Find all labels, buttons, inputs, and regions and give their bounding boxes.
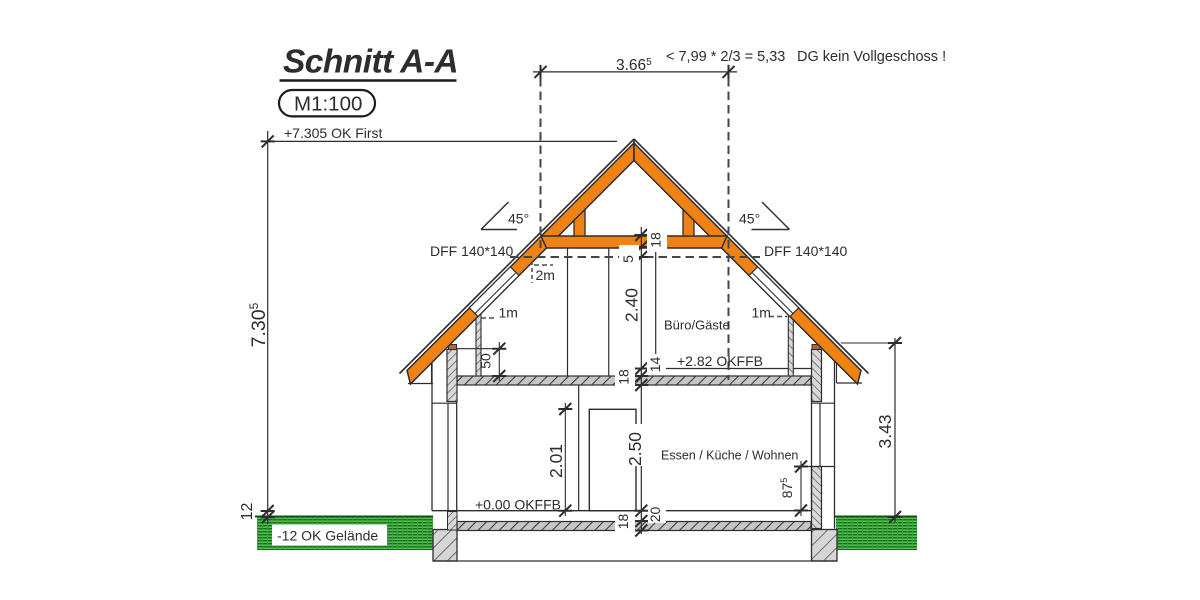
svg-text:+7.305 OK First: +7.305 OK First [284,125,383,141]
svg-text:3.43: 3.43 [875,414,895,448]
svg-text:18: 18 [616,369,632,385]
svg-text:20: 20 [647,507,663,523]
svg-text:+2.82 OKFFB: +2.82 OKFFB [677,353,763,369]
svg-text:DG kein Vollgeschoss !: DG kein Vollgeschoss ! [797,49,946,65]
svg-text:Büro/Gäste: Büro/Gäste [664,318,730,333]
svg-text:-12 OK Gelände: -12 OK Gelände [277,528,378,544]
svg-text:Schnitt A-A: Schnitt A-A [283,44,458,81]
svg-text:1m: 1m [499,305,518,321]
svg-text:2.50: 2.50 [625,432,645,466]
svg-text:18: 18 [615,514,631,530]
svg-text:DFF 140*140: DFF 140*140 [764,243,847,259]
svg-text:45°: 45° [508,211,529,227]
svg-text:+0.00 OKFFB: +0.00 OKFFB [475,497,561,513]
svg-text:1m: 1m [752,305,771,321]
svg-text:18: 18 [648,232,664,248]
svg-text:2.01: 2.01 [546,444,566,478]
svg-text:2.40: 2.40 [622,288,642,322]
svg-text:M1:100: M1:100 [294,93,362,116]
svg-text:14: 14 [647,357,663,373]
svg-text:< 7,99 * 2/3 = 5,33: < 7,99 * 2/3 = 5,33 [666,49,785,65]
svg-text:45°: 45° [739,211,760,227]
svg-text:50: 50 [478,353,494,369]
svg-text:12: 12 [239,503,256,521]
svg-text:Essen / Küche / Wohnen: Essen / Küche / Wohnen [661,449,798,463]
svg-text:DFF 140*140: DFF 140*140 [430,243,513,259]
svg-text:5: 5 [620,255,636,263]
svg-text:2m: 2m [536,267,555,283]
